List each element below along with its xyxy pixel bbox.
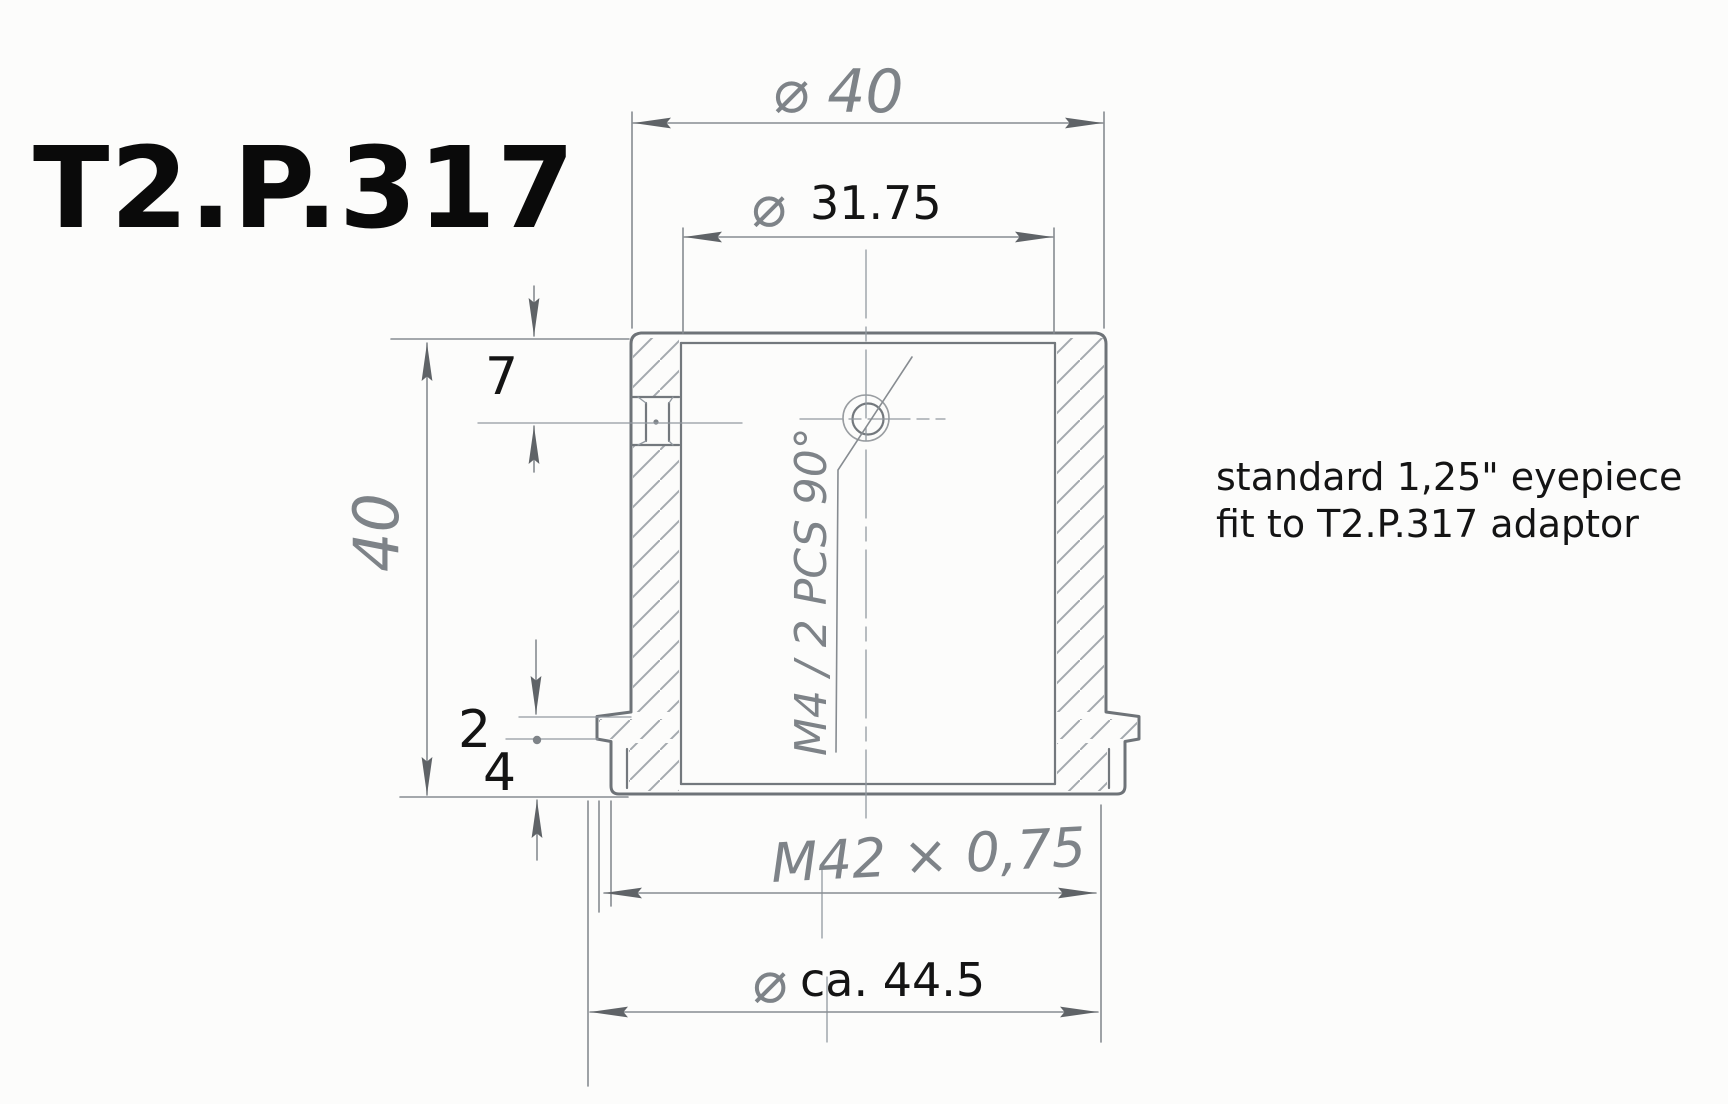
label-bore-value: 31.75 [810, 176, 942, 230]
drawing-canvas: ⌀ 40 ⌀ 31.75 40 7 2 4 M42 × [0, 0, 1728, 1104]
label-od-bottom-value: ca. 44.5 [800, 953, 985, 1007]
dimension-dot [533, 736, 541, 744]
note-line-1: standard 1,25" eyepiece [1216, 455, 1682, 499]
label-height: 40 [340, 493, 413, 572]
label-od-top: ⌀ 40 [772, 57, 904, 127]
page-title: T2.P.317 [33, 124, 576, 254]
label-screw-spec: M4 / 2 PCS 90° [786, 427, 837, 756]
label-od-bottom-symbol: ⌀ [751, 948, 786, 1016]
technical-drawing-page: ⌀ 40 ⌀ 31.75 40 7 2 4 M42 × [0, 0, 1728, 1104]
note-line-2: fit to T2.P.317 adaptor [1216, 502, 1639, 546]
label-flange: 4 [483, 743, 516, 803]
label-bore-symbol: ⌀ [750, 172, 785, 240]
label-screw-offset: 7 [485, 347, 518, 407]
